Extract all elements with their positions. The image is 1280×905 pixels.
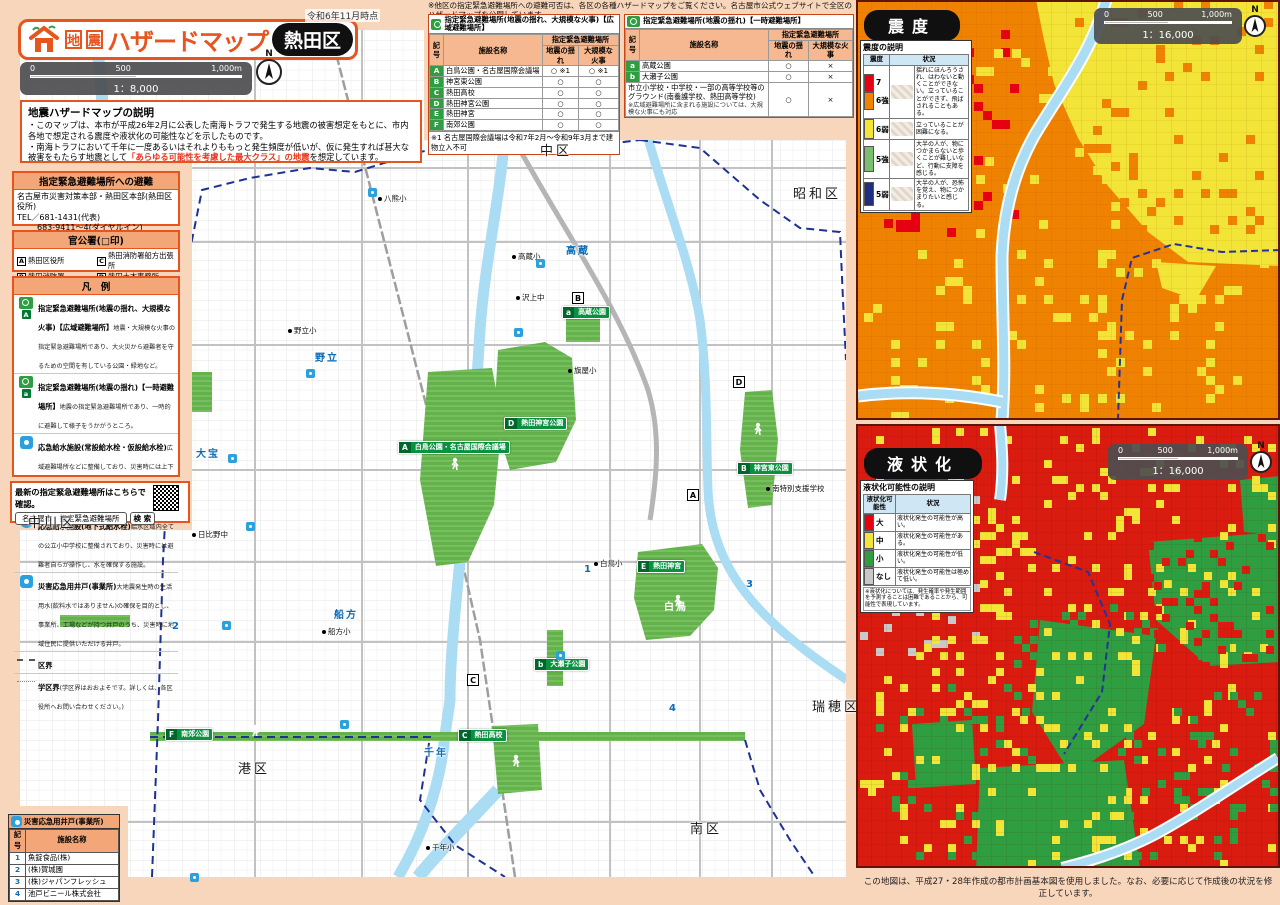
compass: N (1244, 6, 1266, 37)
school-label: 白鳥小 (594, 558, 623, 569)
hazard-type-char: 地 (65, 30, 82, 49)
scale-tick: 0 (30, 65, 35, 74)
compass-needle-icon (1255, 454, 1267, 470)
water-icon (306, 369, 315, 378)
date-note: 令和6年11月時点 (305, 9, 380, 22)
house-icon (27, 24, 61, 56)
description-heading: 地震ハザードマップの説明 (28, 105, 414, 120)
temporary-evacuation-icon: a (16, 375, 36, 398)
intensity-illustration (891, 152, 913, 166)
ekijoka-footnote: ※液状化については、発生確率や発生範囲を予測することは困難であることから、可能性… (863, 587, 971, 611)
water-faucet-icon (16, 435, 36, 449)
government-offices-box: 官公署(□印) A熱田区役所 C熱田消防署船方出張所 B熱田消防署 D熱田土木事… (12, 230, 180, 272)
liquefaction-swatch (864, 532, 874, 549)
contact-org: 名古屋市災害対策本部・熱田区本部(熱田区役所) (17, 192, 175, 213)
intensity-swatch (864, 92, 874, 110)
liquefaction-swatch (864, 514, 874, 531)
scale-line (30, 75, 242, 78)
table-row: 2(株)賀城園 (10, 864, 119, 876)
water-icon (222, 621, 231, 630)
max-class-highlight: 「あらゆる可能性を考慮した最大クラス」の地震 (127, 152, 309, 162)
col-header: 記号 (626, 30, 640, 61)
offices-heading: 官公署(□印) (14, 232, 178, 249)
col-header: 大規模な火事 (579, 46, 619, 66)
school-label: 八熊小 (378, 193, 407, 204)
col-header: 地震の揺れ (543, 46, 579, 66)
col-header: 施設名称 (640, 30, 769, 61)
water-icon (556, 651, 565, 660)
legend-row: 小 液状化発生の可能性が低い。 (864, 549, 971, 567)
temporary-evacuation-table: 指定緊急避難場所(地震の揺れ)【一時避難場所】 記号 施設名称 指定緊急避難場所… (624, 14, 854, 118)
ward-label: 港区 (238, 758, 270, 777)
table-footnote: ※1 名古屋国際会議場は令和7年2月～令和9年3月まで建物立入不可 (429, 131, 619, 154)
office-item: A熱田区役所 (17, 251, 95, 271)
qr-code (153, 485, 179, 511)
contact-heading: 指定緊急避難場所への避難 (14, 173, 178, 190)
water-icon (368, 188, 377, 197)
ward-label: 中区 (540, 140, 572, 159)
intensity-swatch (864, 146, 874, 172)
wells-heading: 災害応急用井戸(事業所) (24, 817, 104, 827)
ward-label: 瑞穂区 (812, 696, 860, 715)
table-row: A白鳥公園・名古屋国際会議場○ ※1○ ※1 (430, 66, 619, 77)
poster-title: ハザードマップ (107, 22, 268, 57)
table-row: 4池戸ビニール株式会社 (10, 888, 119, 900)
description-line1: ・このマップは、本市が平成26年2月に公表した南海トラフで発生する地震の被害想定… (28, 120, 414, 142)
ekijoka-panel-title: 液状化 (864, 448, 982, 479)
table-row: D熱田神宮公園○○ (430, 98, 619, 109)
main-scale-bar: 0 500 1,000m 1：8,000 (20, 62, 252, 95)
school-label: 沢上中 (516, 292, 545, 303)
ekijoka-legend-title: 液状化可能性の説明 (863, 482, 971, 493)
legend-item: a 指定緊急避難場所(地震の揺れ)【一時避難場所】地震の指定緊急避難場所であり、… (14, 374, 178, 434)
legend-box: 凡 例 A 指定緊急避難場所(地震の揺れ、大規模な火事)【広域避難場所】地震・大… (12, 276, 180, 477)
liquefaction-swatch (864, 550, 874, 567)
well-mark: 3 (746, 579, 753, 590)
shindo-scale-bar: 05001,000m 1：16,000 (1094, 8, 1242, 44)
ward-label: 昭和区 (793, 183, 841, 202)
well-mark: 2 (172, 621, 179, 632)
water-icon (340, 720, 349, 729)
well-mark: 4 (669, 703, 676, 714)
legend-row: 5弱 大半の人が、恐怖を覚え、物につかまりたいと感じる。 (864, 179, 969, 211)
wells-col-mark: 記号 (10, 830, 26, 853)
park-badge: A白鳥公園・名古屋国際会議場 (398, 441, 510, 454)
bottom-margin-band (0, 877, 858, 905)
legend-row: 5強 大半の人が、物につかまらないと歩くことが難しいなど、行動に支障を感じる。 (864, 140, 969, 179)
table-row: F南郊公園○○ (430, 120, 619, 131)
legend-row: 7 6強 揺れにほんろうされ、はわないと動くことができない。立っていることができ… (864, 65, 969, 118)
compass: N (256, 50, 282, 85)
col-header: 地震の揺れ (769, 40, 809, 60)
compass-needle-icon (262, 63, 276, 81)
area-label: 船方 (334, 606, 358, 621)
water-icon (536, 259, 545, 268)
ward-name-badge: 熱田区 (272, 23, 353, 56)
qr-lead-text: 最新の指定緊急避難場所はこちらで確認。 (15, 486, 153, 510)
office-mark: B (572, 292, 584, 304)
ward-label: 中川区 (28, 512, 76, 531)
park-badge: D熱田神宮公園 (504, 417, 567, 430)
area-label: 白鳥 (664, 598, 688, 613)
school-label: 野立小 (288, 325, 317, 336)
park-badge: E熱田神宮 (637, 560, 685, 573)
school-label: 千年小 (426, 842, 455, 853)
intensity-swatch (864, 74, 874, 92)
scale-tick: 1,000m (211, 65, 242, 74)
table-row: B神宮東公園○○ (430, 77, 619, 88)
well-icon (11, 816, 22, 827)
office-mark: A (687, 489, 699, 501)
park-badge: C熱田高校 (458, 729, 507, 742)
area-label: 千年 (424, 744, 448, 759)
source-note: この地図は、平成27・28年作成の都市計画基本図を使用しました。なお、必要に応じ… (856, 868, 1280, 905)
col-header: 液状化可能性 (864, 495, 896, 514)
park-badge: B神宮東公園 (737, 462, 793, 475)
water-icon (228, 454, 237, 463)
title-banner: 地 震 ハザードマップ 熱田区 (18, 19, 358, 60)
col-header: 指定緊急避難場所 (543, 35, 619, 46)
intensity-illustration (891, 122, 913, 136)
legend-item: A 指定緊急避難場所(地震の揺れ、大規模な火事)【広域避難場所】地震・大規模な火… (14, 295, 178, 374)
col-header: 施設名称 (444, 35, 543, 66)
office-item: C熱田消防署船方出張所 (97, 251, 175, 271)
col-header: 状況 (890, 55, 969, 66)
legend-row: 6弱 立っていることが困難になる。 (864, 119, 969, 140)
compass-n: N (1251, 6, 1259, 15)
table-heading: 指定緊急避難場所(地震の揺れ)【一時避難場所】 (643, 17, 805, 25)
hazard-type-char: 震 (86, 30, 103, 49)
wide-evac-icon (431, 19, 441, 30)
well-mark: 1 (584, 564, 591, 575)
table-row: C熱田高校○○ (430, 87, 619, 98)
intensity-illustration (891, 187, 913, 201)
intensity-swatch (864, 119, 874, 139)
area-label: 大宝 (196, 445, 220, 460)
water-icon (514, 328, 523, 337)
area-label: 野立 (315, 349, 339, 364)
compass-n: N (265, 50, 273, 59)
ward-label: 南区 (690, 818, 722, 837)
table-row: E熱田神宮○○ (430, 109, 619, 120)
legend-item: 災害応急用井戸(事業所)大地震発生時の生活用水(飲料水ではありません)の確保を目… (14, 573, 178, 652)
legend-row: 中 液状化発生の可能性がある。 (864, 531, 971, 549)
legend-row: 大 液状化発生の可能性が高い。 (864, 513, 971, 531)
col-header: 震度 (864, 55, 890, 66)
scale-ratio: 1：8,000 (30, 80, 242, 95)
area-label: 高蔵 (566, 242, 590, 257)
scale-tick: 500 (116, 65, 131, 74)
legend-heading: 凡 例 (14, 278, 178, 295)
description-line2: ・南海トラフにおいて千年に一度あるいはそれよりももっと発生頻度が低いが、仮に発生… (28, 142, 414, 164)
office-mark: D (733, 376, 745, 388)
shindo-legend: 震度の説明 震度 状況 7 6強 揺れにほんろうされ、はわないと動くことができな… (860, 40, 972, 213)
compass-n: N (1257, 442, 1265, 451)
evacuation-contact-box: 指定緊急避難場所への避難 名古屋市災害対策本部・熱田区本部(熱田区役所) TEL… (12, 171, 180, 226)
wide-evacuation-table: 指定緊急避難場所(地震の揺れ、大規模な火事)【広域避難場所】 記号 施設名称 指… (428, 14, 620, 155)
table-row: 3(株)ジャパンフレッシュ (10, 876, 119, 888)
school-label: 旗屋小 (568, 365, 597, 376)
legend-item: 学区界(学区界はおおよそです。詳しくは、各区役所へお問い合わせください。) (14, 674, 178, 714)
table-row: 1魚錠食品(株) (10, 852, 119, 864)
park-badge: F南郊公園 (165, 728, 213, 741)
liquefaction-swatch (864, 568, 874, 585)
wide-evacuation-icon: A (16, 296, 36, 319)
description-box: 地震ハザードマップの説明 ・このマップは、本市が平成26年2月に公表した南海トラ… (20, 100, 422, 163)
search-button[interactable]: 検 索 (130, 512, 156, 525)
compass: N (1250, 442, 1272, 473)
legend-item: 区界 (14, 652, 178, 674)
ekijoka-scale-bar: 05001,000m 1：16,000 (1108, 444, 1248, 480)
table-row: b大瀬子公園○× (626, 71, 853, 82)
emergency-well-icon (16, 574, 36, 588)
school-label: 南特別支援学校 (766, 483, 825, 494)
temp-evac-icon (627, 16, 640, 27)
park-badge: a高蔵公園 (562, 306, 610, 319)
compass-needle-icon (1249, 18, 1261, 34)
emergency-wells-table: 災害応急用井戸(事業所) 記号施設名称 1魚錠食品(株) 2(株)賀城園 3(株… (8, 814, 120, 902)
shindo-panel-title: 震度 (864, 10, 960, 41)
ekijoka-legend: 液状化可能性の説明 液状化可能性 状況 大 液状化発生の可能性が高い。 中 液状… (860, 480, 974, 613)
school-label: 船方小 (322, 626, 351, 637)
table-row: 市立小学校・中学校・一部の高等学校等のグラウンド(南養護学校、熱田高等学校)※広… (626, 82, 853, 117)
school-district-boundary-icon (16, 675, 36, 682)
hazard-map-poster: 地 震 ハザードマップ 熱田区 令和6年11月時点 0 500 1,000m 1… (0, 0, 1280, 905)
office-mark: C (467, 674, 479, 686)
shindo-legend-title: 震度の説明 (863, 42, 969, 53)
intensity-swatch (864, 182, 874, 206)
col-header: 記号 (430, 35, 444, 66)
wells-col-name: 施設名称 (26, 830, 119, 853)
water-icon (246, 522, 255, 531)
intensity-illustration (891, 85, 913, 99)
ward-boundary-icon (16, 653, 36, 661)
contact-tel: TEL／681-1431(代表) (17, 213, 175, 223)
legend-row: なし 液状化発生の可能性は極めて低い。 (864, 567, 971, 585)
table-heading: 指定緊急避難場所(地震の揺れ、大規模な火事)【広域避難場所】 (444, 16, 617, 32)
col-header: 大規模な火事 (809, 40, 853, 60)
col-header: 指定緊急避難場所 (769, 30, 853, 41)
water-icon (190, 873, 199, 882)
table-row: a高蔵公園○× (626, 61, 853, 72)
col-header: 状況 (896, 495, 971, 514)
school-label: 日比野中 (192, 529, 228, 540)
